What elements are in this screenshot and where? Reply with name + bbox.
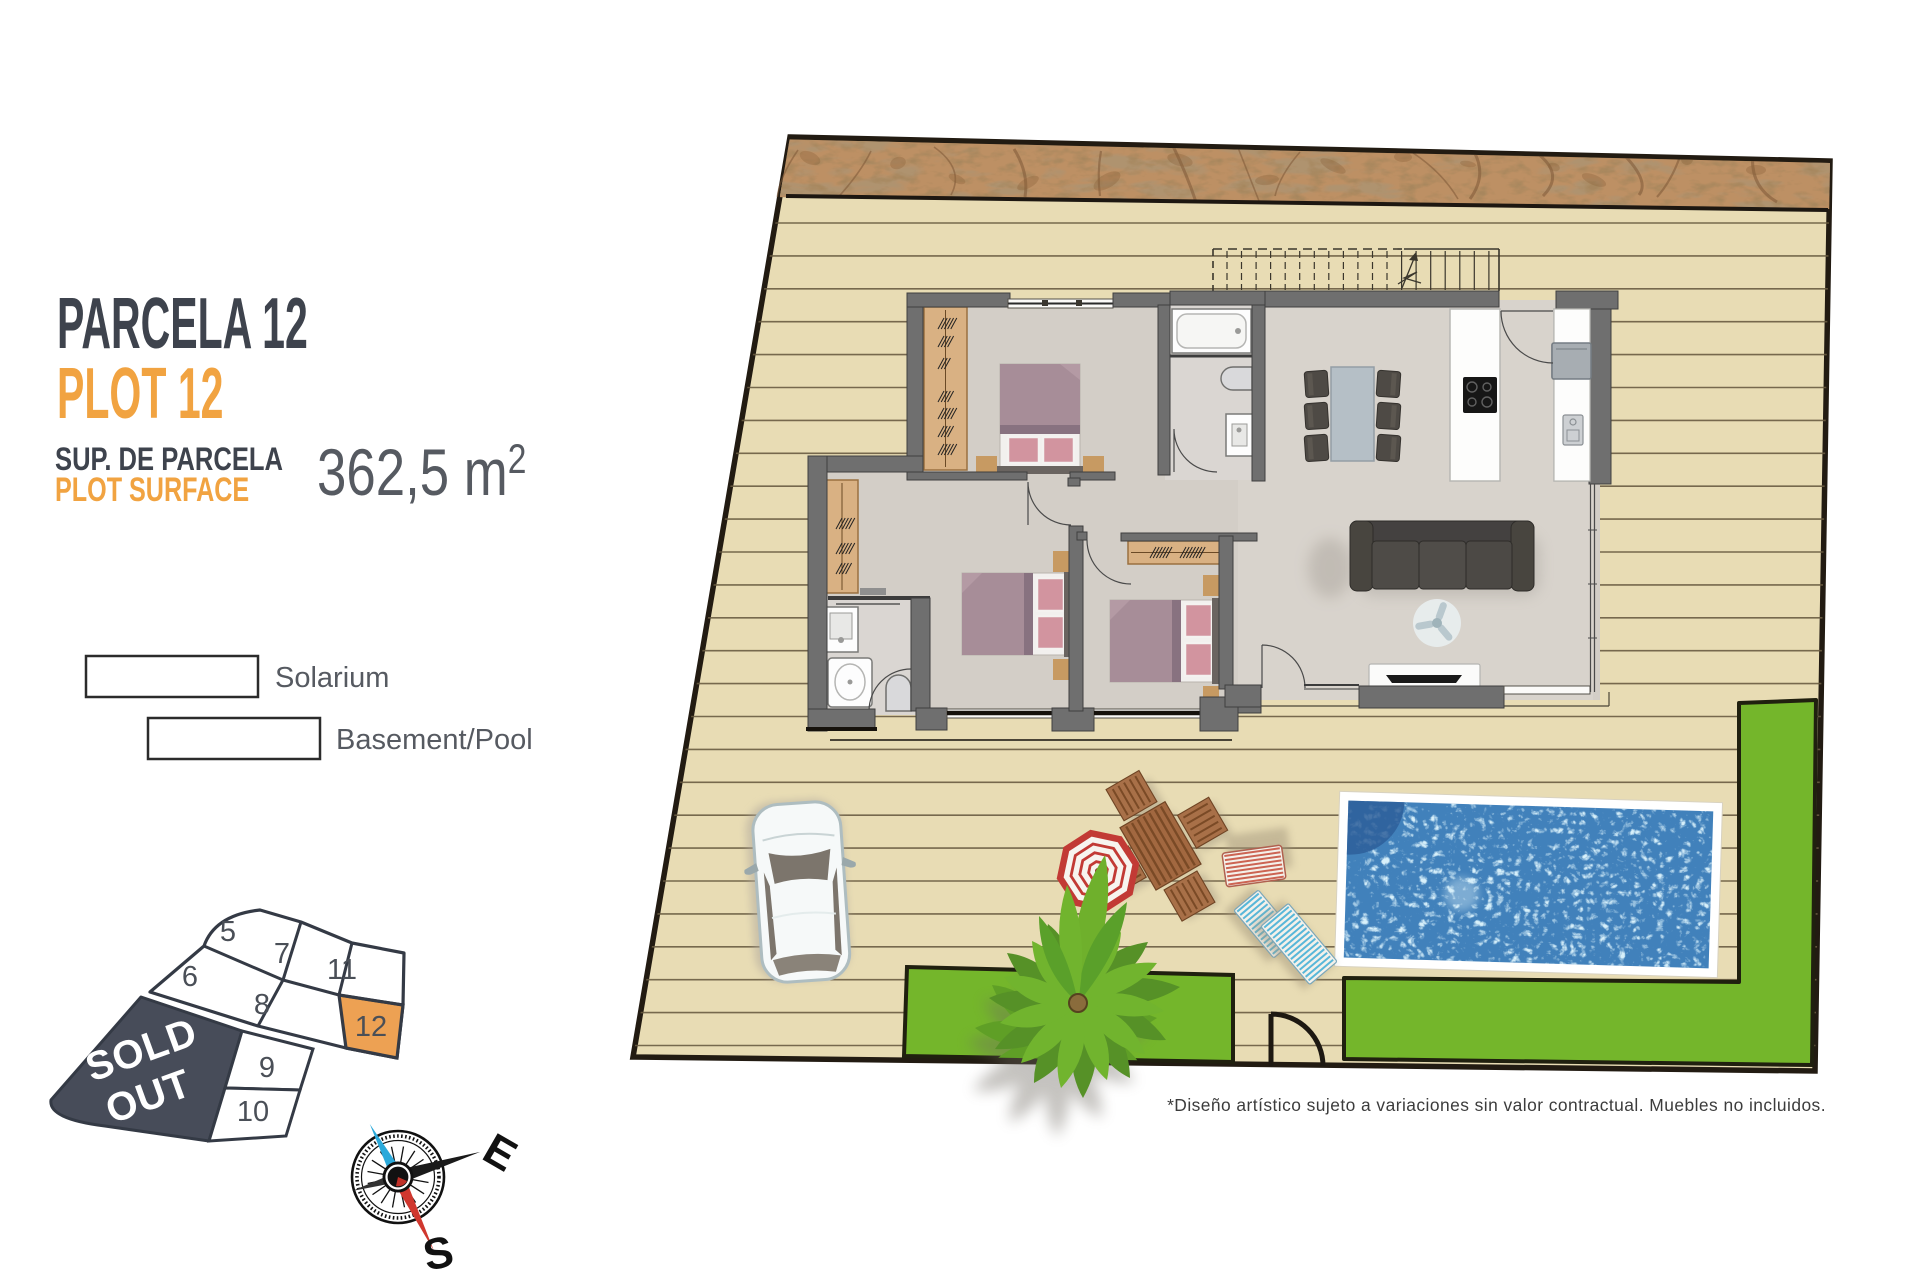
svg-text:PLOT 12: PLOT 12 — [57, 354, 223, 434]
svg-text:5: 5 — [220, 916, 236, 948]
svg-text:PARCELA 12: PARCELA 12 — [57, 284, 308, 364]
svg-text:*Diseño artístico sujeto a var: *Diseño artístico sujeto a variaciones s… — [1167, 1095, 1826, 1115]
svg-text:Solarium: Solarium — [275, 662, 389, 694]
svg-text:7: 7 — [274, 938, 290, 970]
svg-text:9: 9 — [259, 1052, 275, 1084]
svg-text:362,5 m2: 362,5 m2 — [317, 435, 526, 509]
svg-text:10: 10 — [237, 1096, 269, 1128]
svg-text:PLOT SURFACE: PLOT SURFACE — [55, 471, 249, 509]
svg-text:12: 12 — [355, 1011, 387, 1043]
svg-text:6: 6 — [182, 961, 198, 993]
svg-text:Basement/Pool: Basement/Pool — [336, 724, 533, 756]
svg-text:8: 8 — [254, 989, 270, 1021]
svg-text:11: 11 — [327, 954, 357, 986]
